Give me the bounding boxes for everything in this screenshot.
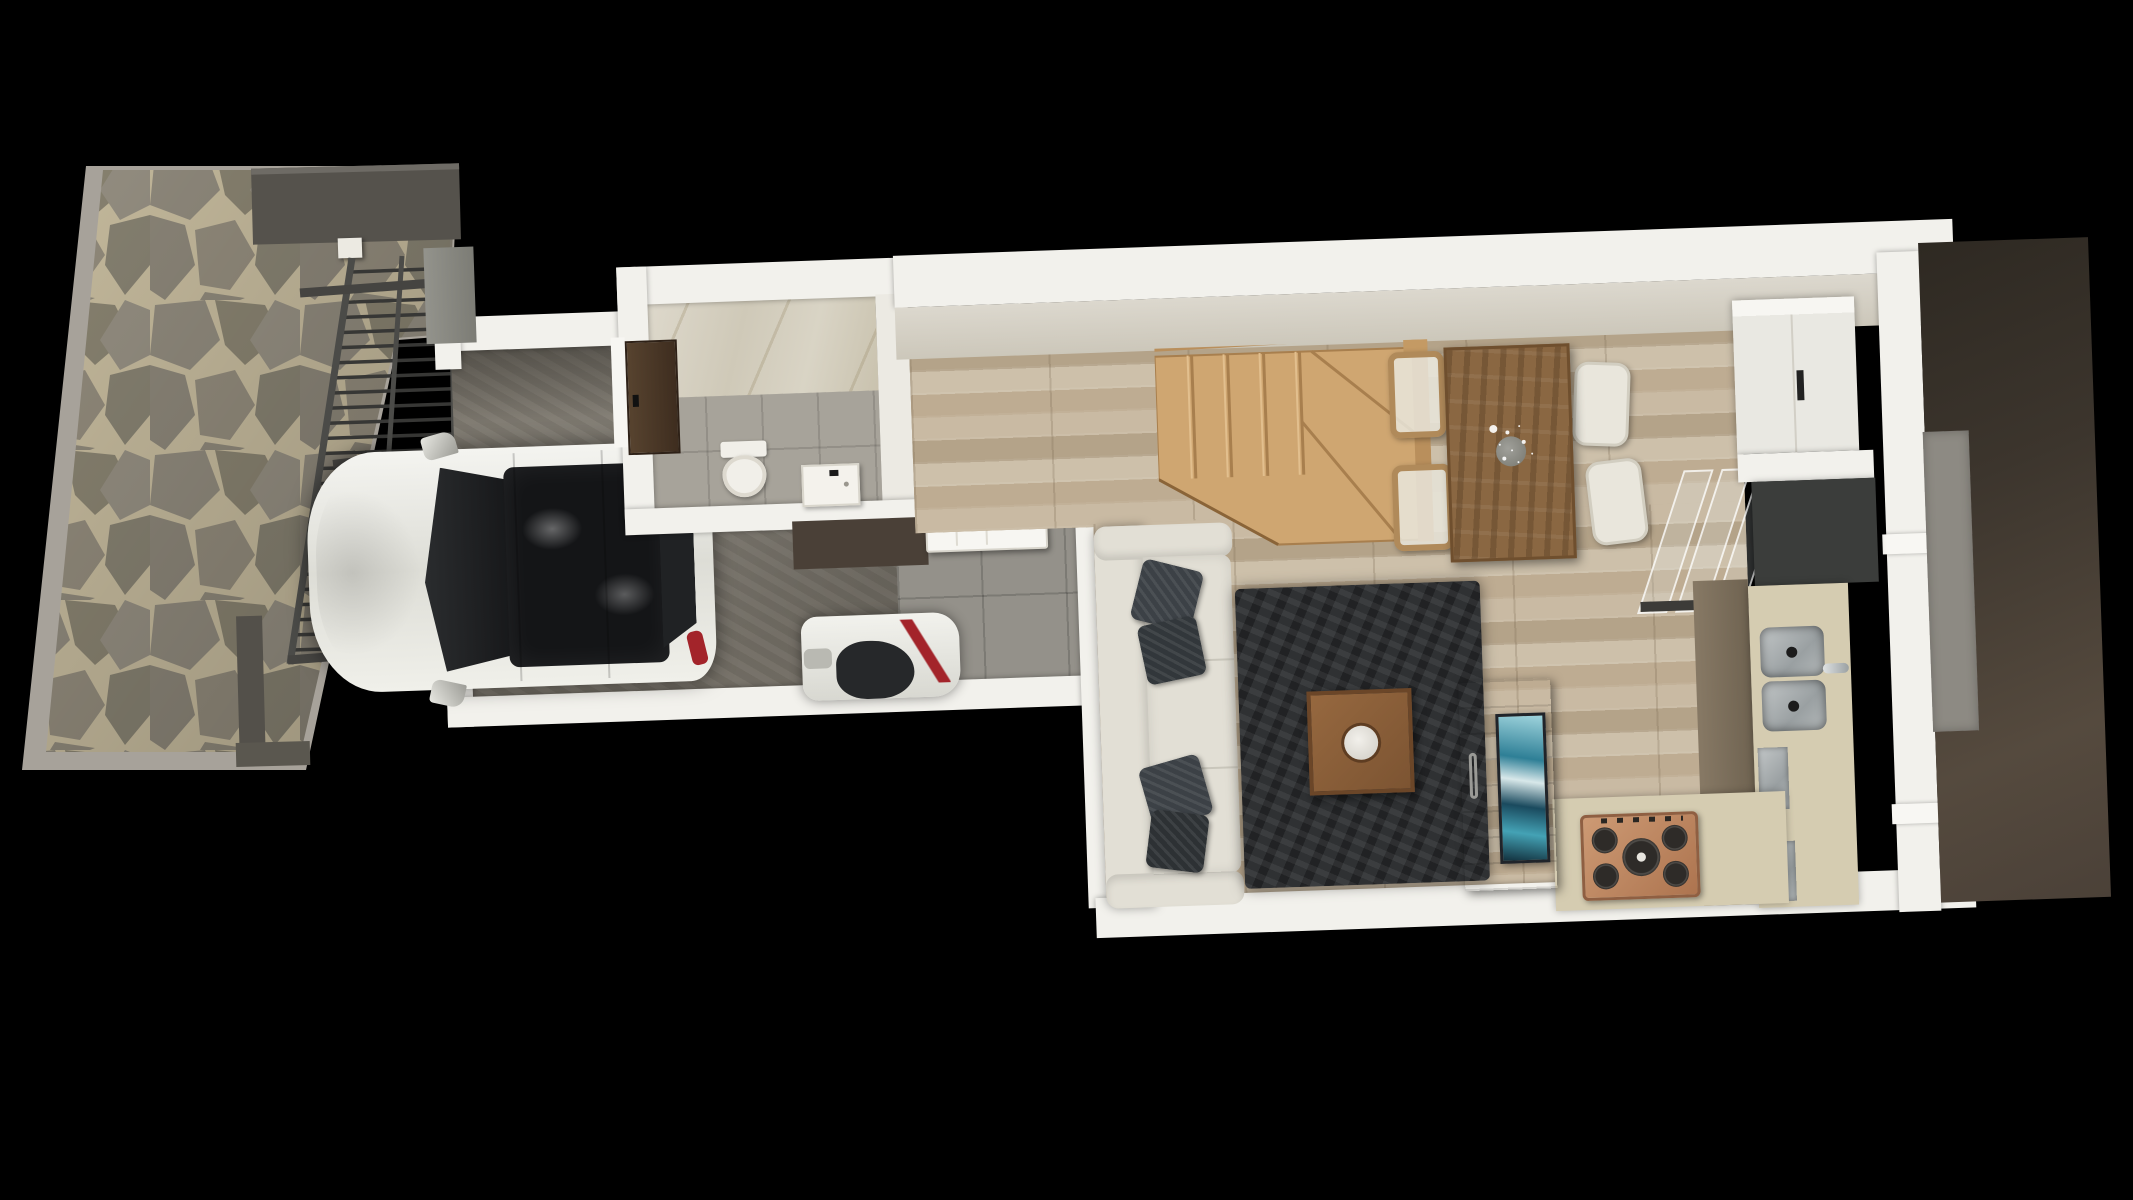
table-vase: [1496, 436, 1527, 467]
sofa-arm-bottom: [1106, 870, 1245, 909]
burner-4: [1662, 860, 1689, 887]
tv-sideboard: [1458, 678, 1557, 891]
small-vehicle-cap: [804, 648, 833, 669]
east-window-sill-1: [1882, 533, 1933, 555]
dining-chair-right-top: [1572, 361, 1631, 447]
sink-bowl-2: [1761, 680, 1827, 732]
sink-bowl-1: [1759, 626, 1825, 678]
nw-concrete-block: [423, 246, 476, 344]
small-vehicle-stripe: [897, 618, 951, 684]
cabinet-handle: [1796, 370, 1804, 400]
burner-2: [1661, 824, 1688, 851]
vase-flowers: [1489, 425, 1497, 433]
bathroom-door-panel: [625, 339, 681, 455]
basin-faucet: [829, 470, 838, 476]
floorplan-render: [0, 0, 2133, 1200]
cooktop-knobs: [1601, 816, 1683, 824]
dining-chair-right-bottom: [1584, 457, 1650, 547]
dining-chair-left-bottom: [1392, 463, 1455, 551]
small-vehicle: [800, 612, 961, 701]
bathroom-door-handle: [633, 395, 639, 407]
coffee-table-tray: [1344, 725, 1379, 760]
dining-table: [1443, 343, 1576, 562]
east-window-sill-2: [1892, 803, 1943, 825]
sofa-pillow-2: [1136, 615, 1207, 686]
sink-faucet: [1823, 663, 1849, 674]
sink-drain-1: [1786, 647, 1797, 658]
coffee-table: [1306, 688, 1415, 796]
car-sunroof-glow-1: [521, 507, 582, 551]
toilet: [718, 440, 770, 500]
kitchen-black-counter: [1751, 478, 1879, 586]
bathroom-marble-wall-face: [645, 294, 878, 398]
kitchen-tall-cabinet: [1732, 296, 1859, 454]
sofa: [1093, 522, 1244, 909]
house: [0, 0, 2133, 1200]
burner-center: [1622, 837, 1661, 876]
basin-drain: [844, 482, 849, 487]
sofa-pillow-4: [1145, 809, 1210, 874]
tv-handle: [1469, 753, 1479, 799]
car-sunroof-glow-2: [594, 572, 655, 616]
entry-accent-wall: [792, 517, 929, 570]
kitchen-sink: [1759, 626, 1827, 732]
bathroom-basin: [801, 463, 860, 507]
dining-chair-left-top: [1388, 351, 1447, 439]
burner-1: [1591, 827, 1618, 854]
toilet-bowl: [722, 454, 767, 498]
sink-drain-2: [1788, 700, 1799, 711]
tv-screen: [1495, 712, 1550, 864]
gas-cooktop: [1580, 811, 1701, 901]
burner-3: [1593, 863, 1620, 890]
